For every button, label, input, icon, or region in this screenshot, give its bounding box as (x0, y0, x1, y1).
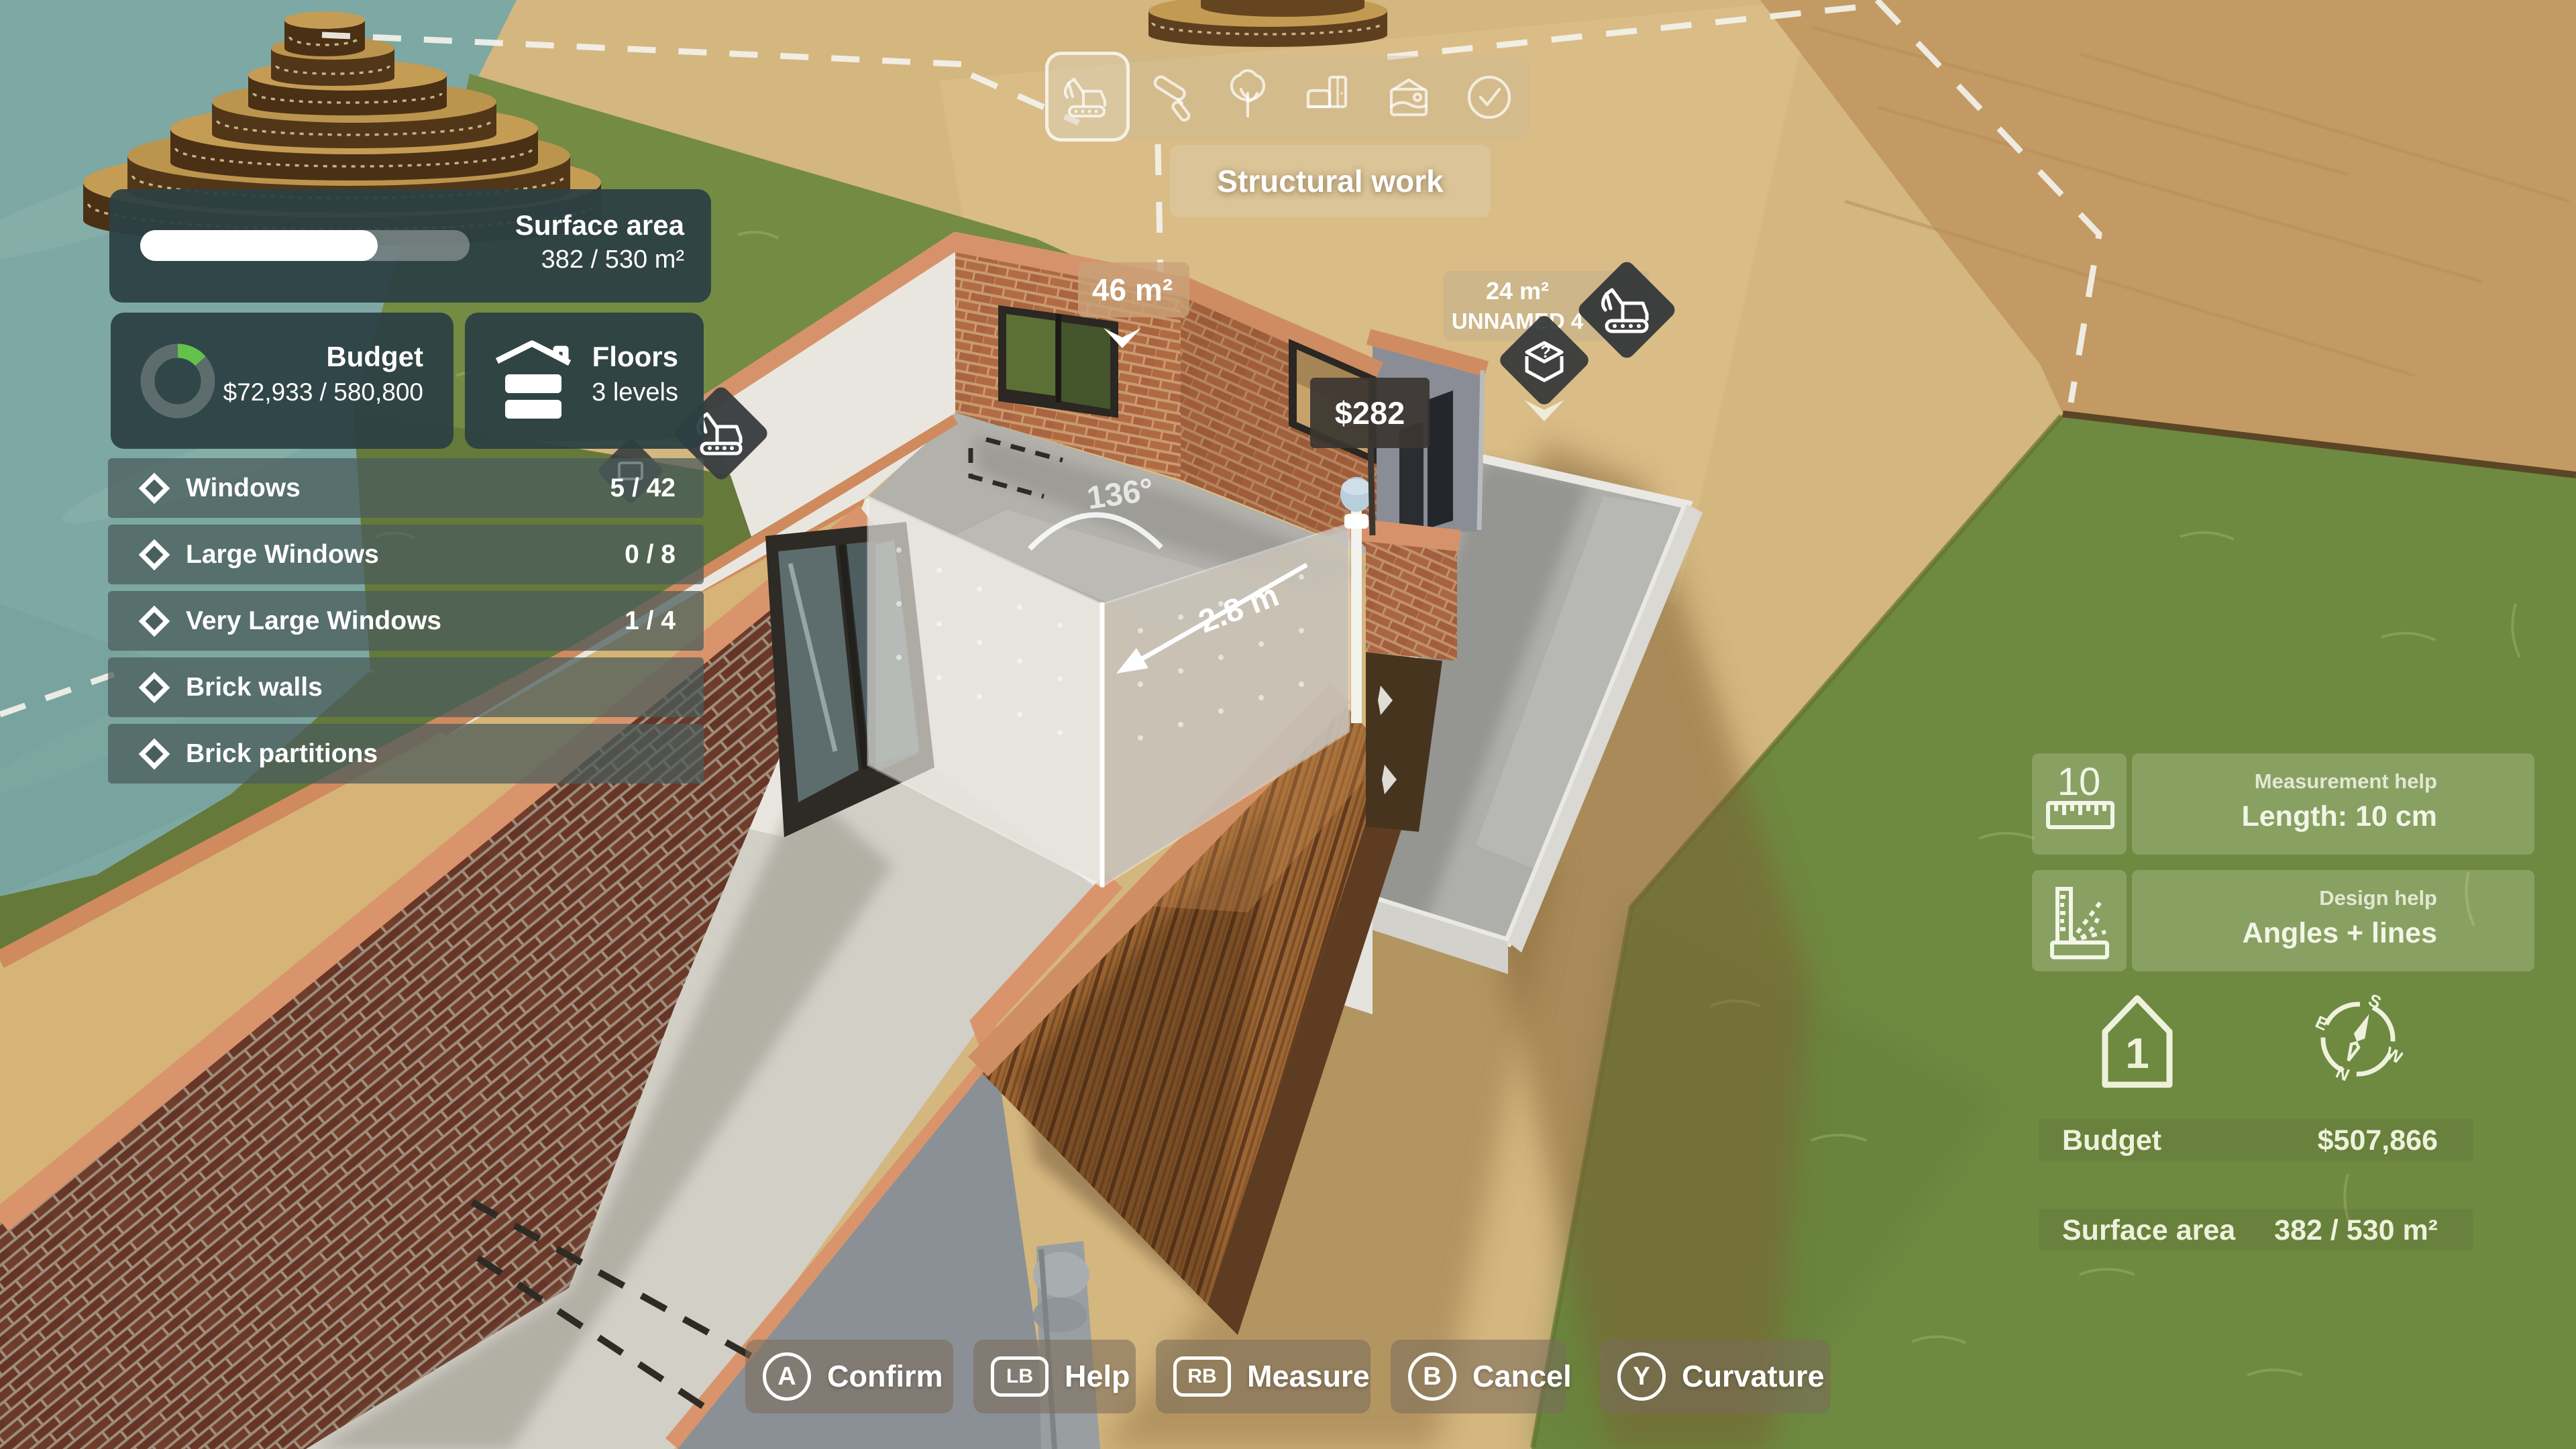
svg-text:10: 10 (2057, 760, 2101, 804)
svg-text:1: 1 (2125, 1029, 2149, 1077)
svg-text:S: S (2365, 994, 2384, 1013)
svg-text:46 m²: 46 m² (1092, 272, 1173, 307)
svg-text:UNNAMED 4: UNNAMED 4 (1452, 309, 1584, 333)
svg-text:?: ? (1540, 341, 1551, 362)
svg-text:$282: $282 (1335, 395, 1405, 431)
svg-text:24 m²: 24 m² (1486, 277, 1549, 305)
